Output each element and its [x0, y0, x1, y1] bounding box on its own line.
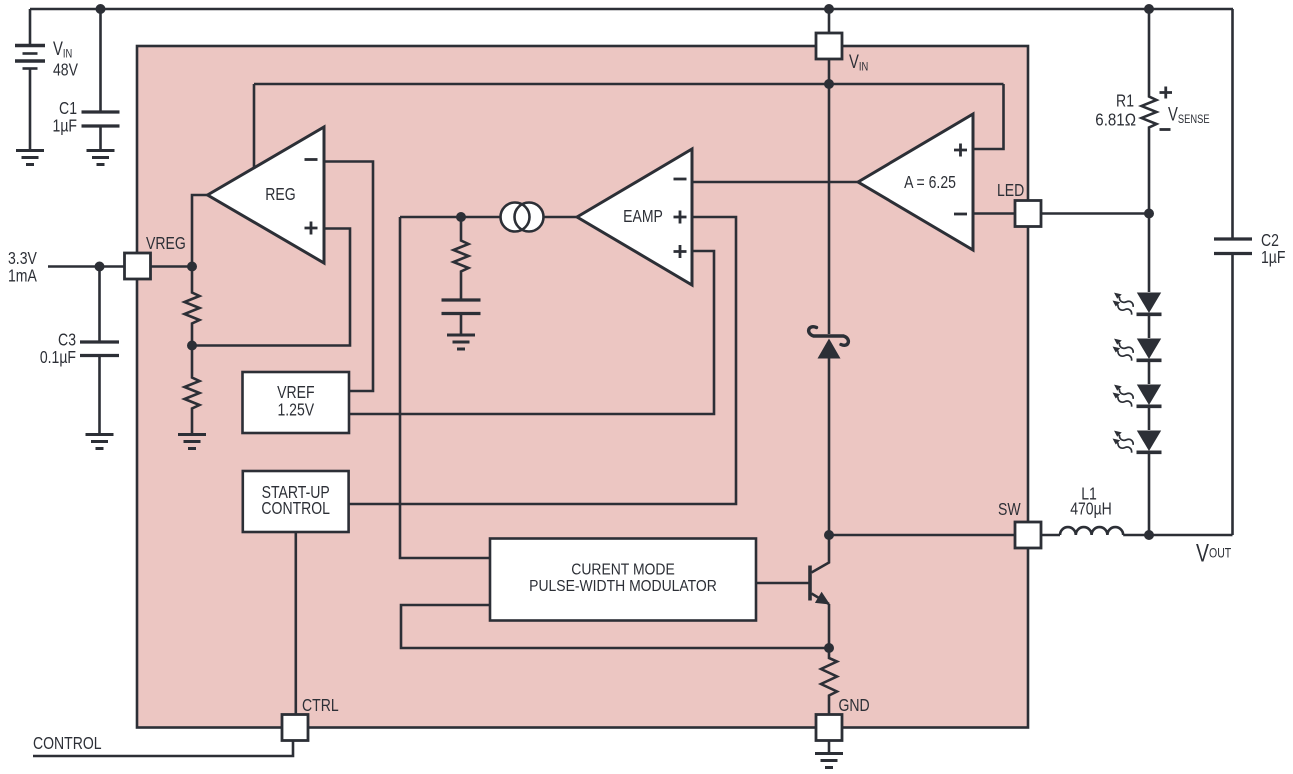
svg-text:0.1µF: 0.1µF [40, 347, 76, 367]
svg-text:GND: GND [839, 695, 870, 715]
svg-text:REG: REG [265, 184, 295, 204]
svg-text:470µH: 470µH [1070, 499, 1112, 519]
svg-text:CTRL: CTRL [302, 695, 339, 715]
svg-text:1mA: 1mA [8, 266, 37, 286]
svg-text:1µF: 1µF [1261, 247, 1286, 267]
svg-text:PULSE-WIDTH MODULATOR: PULSE-WIDTH MODULATOR [529, 578, 717, 595]
svg-text:48V: 48V [53, 60, 78, 80]
svg-text:A = 6.25: A = 6.25 [904, 172, 956, 192]
svg-text:CURENT MODE: CURENT MODE [571, 562, 675, 579]
svg-text:R1: R1 [1116, 91, 1134, 111]
svg-text:6.81Ω: 6.81Ω [1095, 109, 1136, 130]
svg-text:CONTROL: CONTROL [33, 733, 102, 753]
svg-text:SW: SW [998, 499, 1021, 519]
svg-text:CONTROL: CONTROL [261, 498, 330, 518]
svg-text:1µF: 1µF [53, 116, 78, 136]
svg-text:1.25V: 1.25V [277, 400, 314, 420]
svg-text:VREG: VREG [146, 233, 186, 253]
svg-text:LED: LED [997, 180, 1024, 200]
svg-text:EAMP: EAMP [623, 206, 663, 226]
